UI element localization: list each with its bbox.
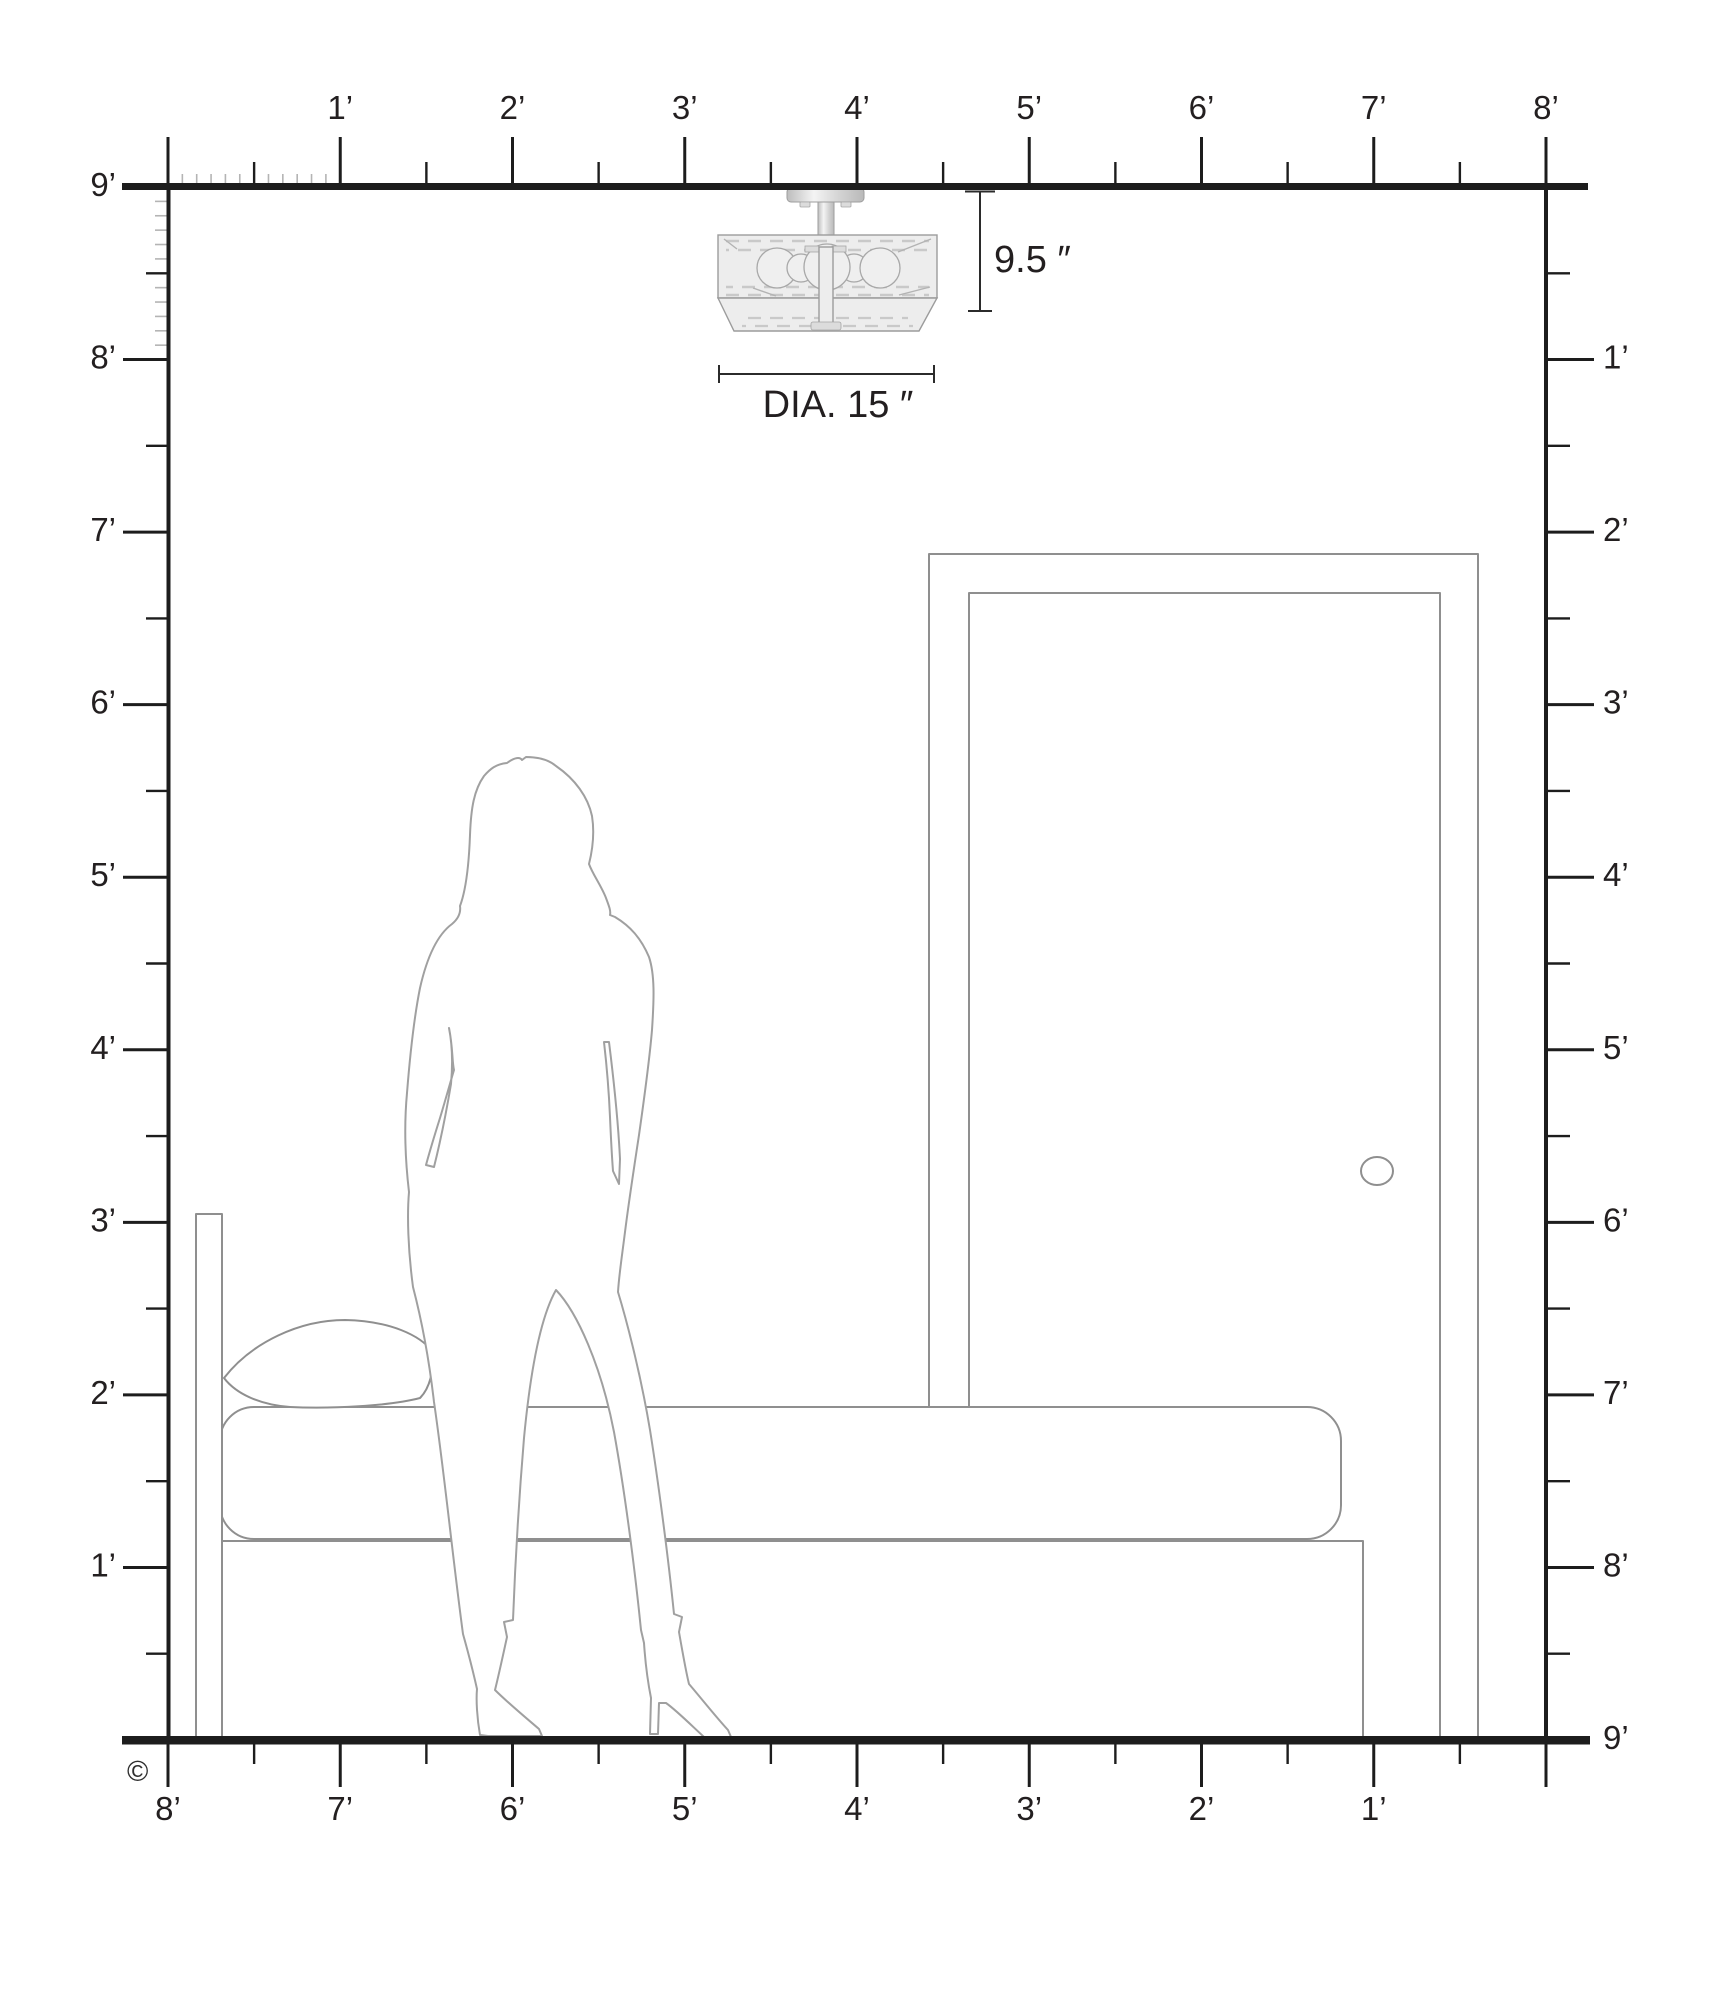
ruler-label: 5’ <box>90 856 116 893</box>
scale-diagram-canvas: 9.5 ″ DIA. 15 ″ 1’2’3’4’5’6’7’8’9’8’7’6’… <box>0 0 1713 2000</box>
lighting-scale-diagram: 9.5 ″ DIA. 15 ″ 1’2’3’4’5’6’7’8’9’8’7’6’… <box>0 0 1713 2000</box>
right-ruler-line <box>1544 187 1548 1740</box>
ruler-label: 2’ <box>1189 1790 1215 1827</box>
ruler-label: 5’ <box>672 1790 698 1827</box>
ruler-label: 9’ <box>1603 1719 1629 1756</box>
ruler-label: 5’ <box>1016 89 1042 126</box>
ruler-label: 3’ <box>672 89 698 126</box>
ruler-label: 5’ <box>1603 1029 1629 1066</box>
ruler-label: 1’ <box>327 89 353 126</box>
ruler-bottom: 8’7’6’5’4’3’2’1’ <box>155 1742 1546 1827</box>
mattress <box>220 1407 1341 1539</box>
left-ruler-line <box>167 187 171 1740</box>
canopy-screw-right <box>841 202 851 207</box>
ruler-label: 7’ <box>1603 1374 1629 1411</box>
fixture-height-label: 9.5 ″ <box>994 239 1071 281</box>
ruler-label: 2’ <box>90 1374 116 1411</box>
fixture-diameter-label: DIA. 15 ″ <box>763 384 914 426</box>
ruler-label: 8’ <box>90 339 116 376</box>
fixture-finial <box>811 322 841 330</box>
ruler-label: 1’ <box>90 1546 116 1583</box>
semi-flush-ceiling-light <box>718 188 937 331</box>
ruler-label: 8’ <box>1603 1546 1629 1583</box>
ruler-label: 1’ <box>1361 1790 1387 1827</box>
fixture-stem-lower <box>819 247 833 324</box>
bulb <box>860 248 900 288</box>
ruler-label: 9’ <box>90 166 116 203</box>
headboard <box>196 1214 222 1741</box>
floor-line <box>122 1736 1590 1745</box>
ruler-label: 2’ <box>1603 511 1629 548</box>
ruler-label: 4’ <box>844 1790 870 1827</box>
ruler-label: 3’ <box>1603 684 1629 721</box>
ruler-label: 7’ <box>1361 89 1387 126</box>
ruler-label: 3’ <box>90 1201 116 1238</box>
ruler-label: 4’ <box>1603 856 1629 893</box>
copyright-symbol: © <box>127 1756 148 1788</box>
canopy-screw-left <box>800 202 810 207</box>
ruler-right: 1’2’3’4’5’6’7’8’9’ <box>1545 273 1629 1756</box>
ruler-label: 6’ <box>90 684 116 721</box>
ruler-label: 7’ <box>90 511 116 548</box>
ruler-label: 6’ <box>500 1790 526 1827</box>
ruler-label: 8’ <box>155 1790 181 1827</box>
bed-base <box>221 1541 1363 1740</box>
ruler-label: 4’ <box>90 1029 116 1066</box>
ruler-label: 1’ <box>1603 339 1629 376</box>
fixture-canopy <box>787 188 864 202</box>
ruler-label: 2’ <box>500 89 526 126</box>
ruler-label: 3’ <box>1016 1790 1042 1827</box>
ruler-top: 1’2’3’4’5’6’7’8’ <box>168 89 1559 189</box>
pillow <box>224 1320 433 1408</box>
ruler-label: 8’ <box>1533 89 1559 126</box>
ceiling-line <box>122 183 1588 190</box>
ruler-left: 9’8’7’6’5’4’3’2’1’ <box>90 166 169 1654</box>
bulb-socket <box>805 246 819 252</box>
doorknob <box>1361 1157 1393 1185</box>
bulb-socket <box>832 246 846 252</box>
ruler-label: 6’ <box>1189 89 1215 126</box>
ruler-label: 7’ <box>327 1790 353 1827</box>
ruler-label: 6’ <box>1603 1201 1629 1238</box>
ruler-label: 4’ <box>844 89 870 126</box>
